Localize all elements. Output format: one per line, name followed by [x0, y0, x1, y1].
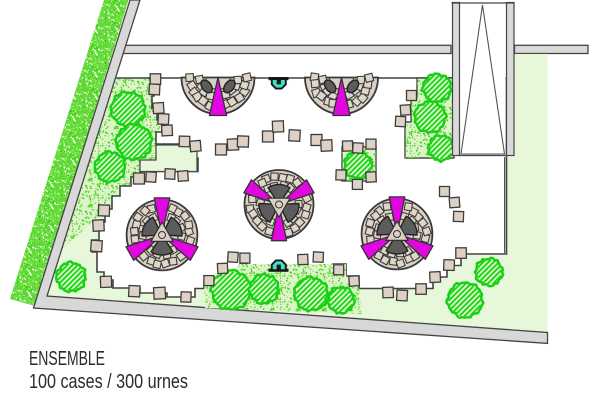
svg-text:100 cases / 300 urnes: 100 cases / 300 urnes — [29, 371, 188, 393]
svg-text:ENSEMBLE: ENSEMBLE — [29, 348, 105, 370]
